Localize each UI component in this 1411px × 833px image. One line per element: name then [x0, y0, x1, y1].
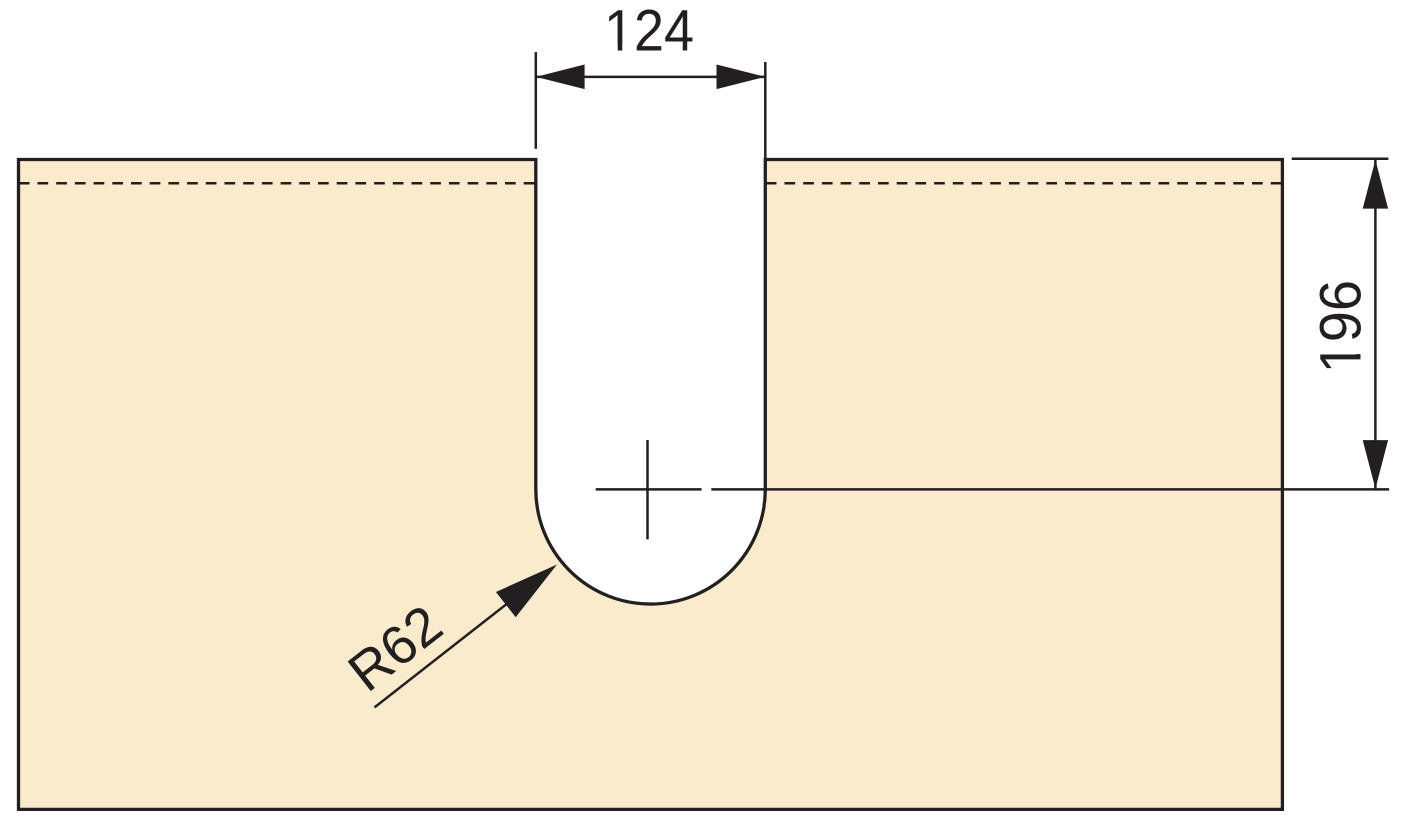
svg-text:124: 124	[604, 0, 694, 63]
svg-text:196: 196	[1309, 280, 1374, 374]
